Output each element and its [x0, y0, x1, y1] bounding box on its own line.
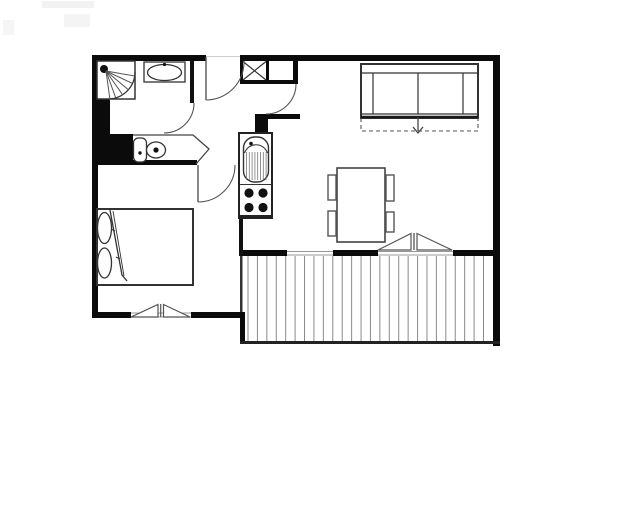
balcony: [248, 256, 484, 341]
toilet-drain-dot: [153, 147, 158, 152]
toilet-tank-dot: [138, 151, 141, 154]
cooktop-burner: [244, 203, 253, 212]
wc-fixtures: [133, 135, 209, 164]
washbasin-tap-dot: [163, 63, 166, 66]
kitchen: [239, 133, 272, 218]
bed-pillow: [98, 213, 112, 244]
balcony-left-wall-foot: [240, 312, 245, 344]
bedroom-window-casement: [131, 305, 158, 318]
cooktop-burner: [244, 188, 253, 197]
bathroom-door-swing: [164, 103, 194, 133]
balcony-deck-planks: [248, 256, 484, 341]
floorplan-canvas: [0, 0, 640, 524]
cooktop-burner: [258, 188, 267, 197]
kitchen-corner-block: [255, 114, 268, 135]
bedroom-door-swing: [198, 165, 235, 202]
wc-wall-mass: [92, 134, 133, 165]
balcony-wall-c: [453, 250, 499, 256]
cooktop-burner: [258, 203, 267, 212]
kitchen-sink-basin: [244, 137, 269, 182]
sofa-pullout-dashed: [361, 118, 478, 131]
bed-pillow: [98, 248, 112, 278]
entry-units-bottom-wall: [240, 80, 298, 84]
balcony-wall-a: [239, 250, 287, 256]
dining-chair: [386, 212, 394, 232]
kitchen-sink-drain-dot: [249, 142, 253, 146]
bedroom-furniture: [97, 209, 193, 285]
faint-artifact: [64, 14, 90, 27]
top-wall-east: [240, 55, 499, 61]
entry-units: [243, 62, 266, 81]
balcony-door-casement: [417, 234, 452, 251]
bathroom-east-wall: [190, 61, 194, 103]
bedroom-window-casement: [164, 305, 191, 318]
washbasin-bowl: [148, 65, 182, 81]
entry-door-swing: [206, 61, 244, 100]
top-wall-west: [92, 55, 206, 61]
living-door-swing: [266, 84, 296, 114]
floorplan-page: [0, 0, 640, 524]
faint-artifact: [42, 1, 94, 8]
bedroom-south-wall-west: [92, 312, 131, 318]
dining-chair: [328, 211, 336, 236]
balcony-wall-b: [333, 250, 378, 256]
balcony-bottom-edge: [240, 341, 500, 344]
bedroom-south-wall-east: [191, 312, 245, 318]
faint-artifact: [3, 20, 14, 35]
dining-chair: [328, 175, 336, 200]
sofa-bed-outline: [361, 64, 478, 118]
shower-wall-stub: [97, 99, 110, 134]
bathroom-fixtures: [97, 61, 185, 100]
dining-table: [337, 168, 385, 242]
dining-chair: [386, 175, 394, 201]
faint-artifacts: [3, 1, 94, 35]
kitchen-unit-bottom-edge: [239, 215, 272, 218]
toilet-tank: [134, 138, 147, 162]
right-wall: [493, 55, 500, 346]
living-furniture: [328, 64, 478, 242]
